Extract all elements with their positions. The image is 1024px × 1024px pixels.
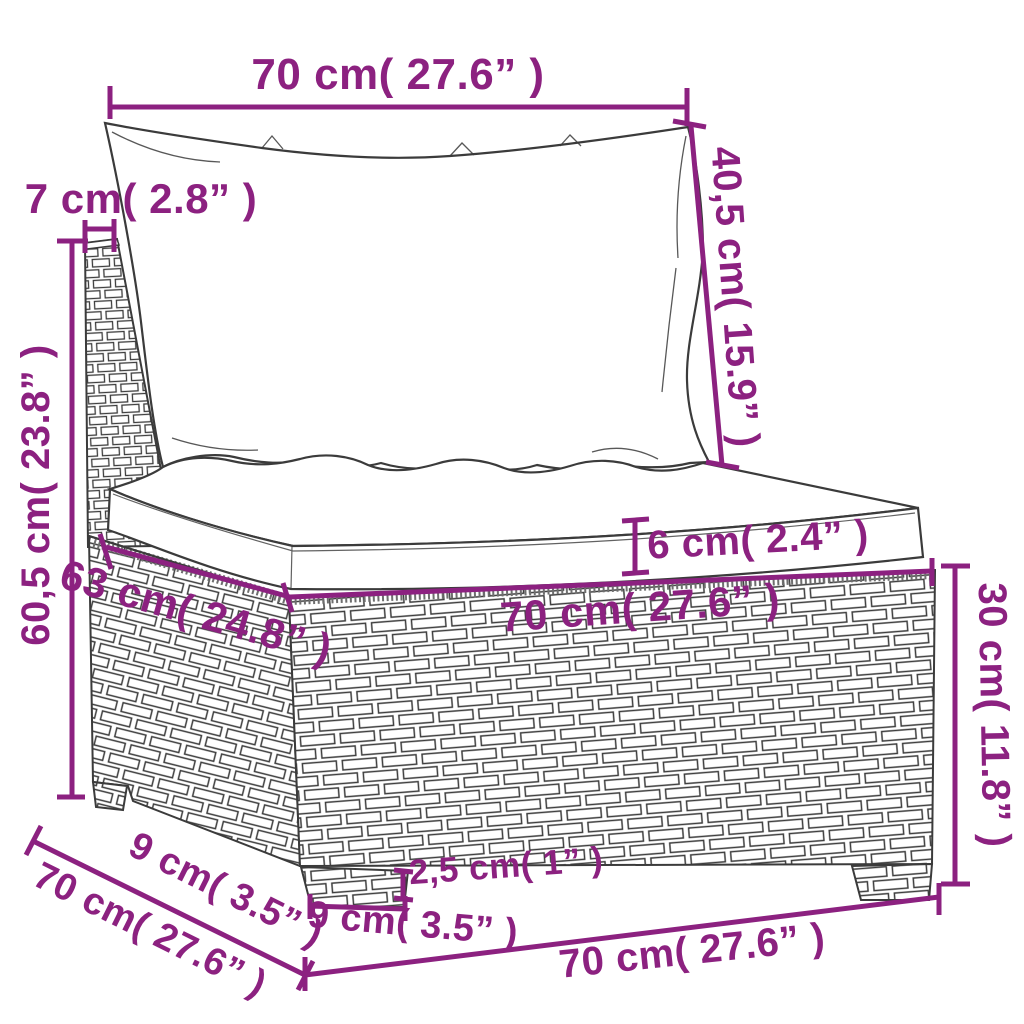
base-right-foot [852, 864, 932, 900]
dim-label-back-width: 70 cm( 27.6” ) [251, 53, 544, 97]
dimension-diagram: 70 cm( 27.6” ) 7 cm( 2.8” ) 40,5 cm( 15.… [0, 0, 1024, 1024]
base-left-foot [93, 782, 127, 810]
dim-label-overall-height: 60,5 cm( 23.8” ) [16, 344, 56, 646]
dim-label-back-thickness: 7 cm( 2.8” ) [25, 178, 257, 220]
dim-label-base-height: 30 cm( 11.8” ) [972, 582, 1017, 848]
